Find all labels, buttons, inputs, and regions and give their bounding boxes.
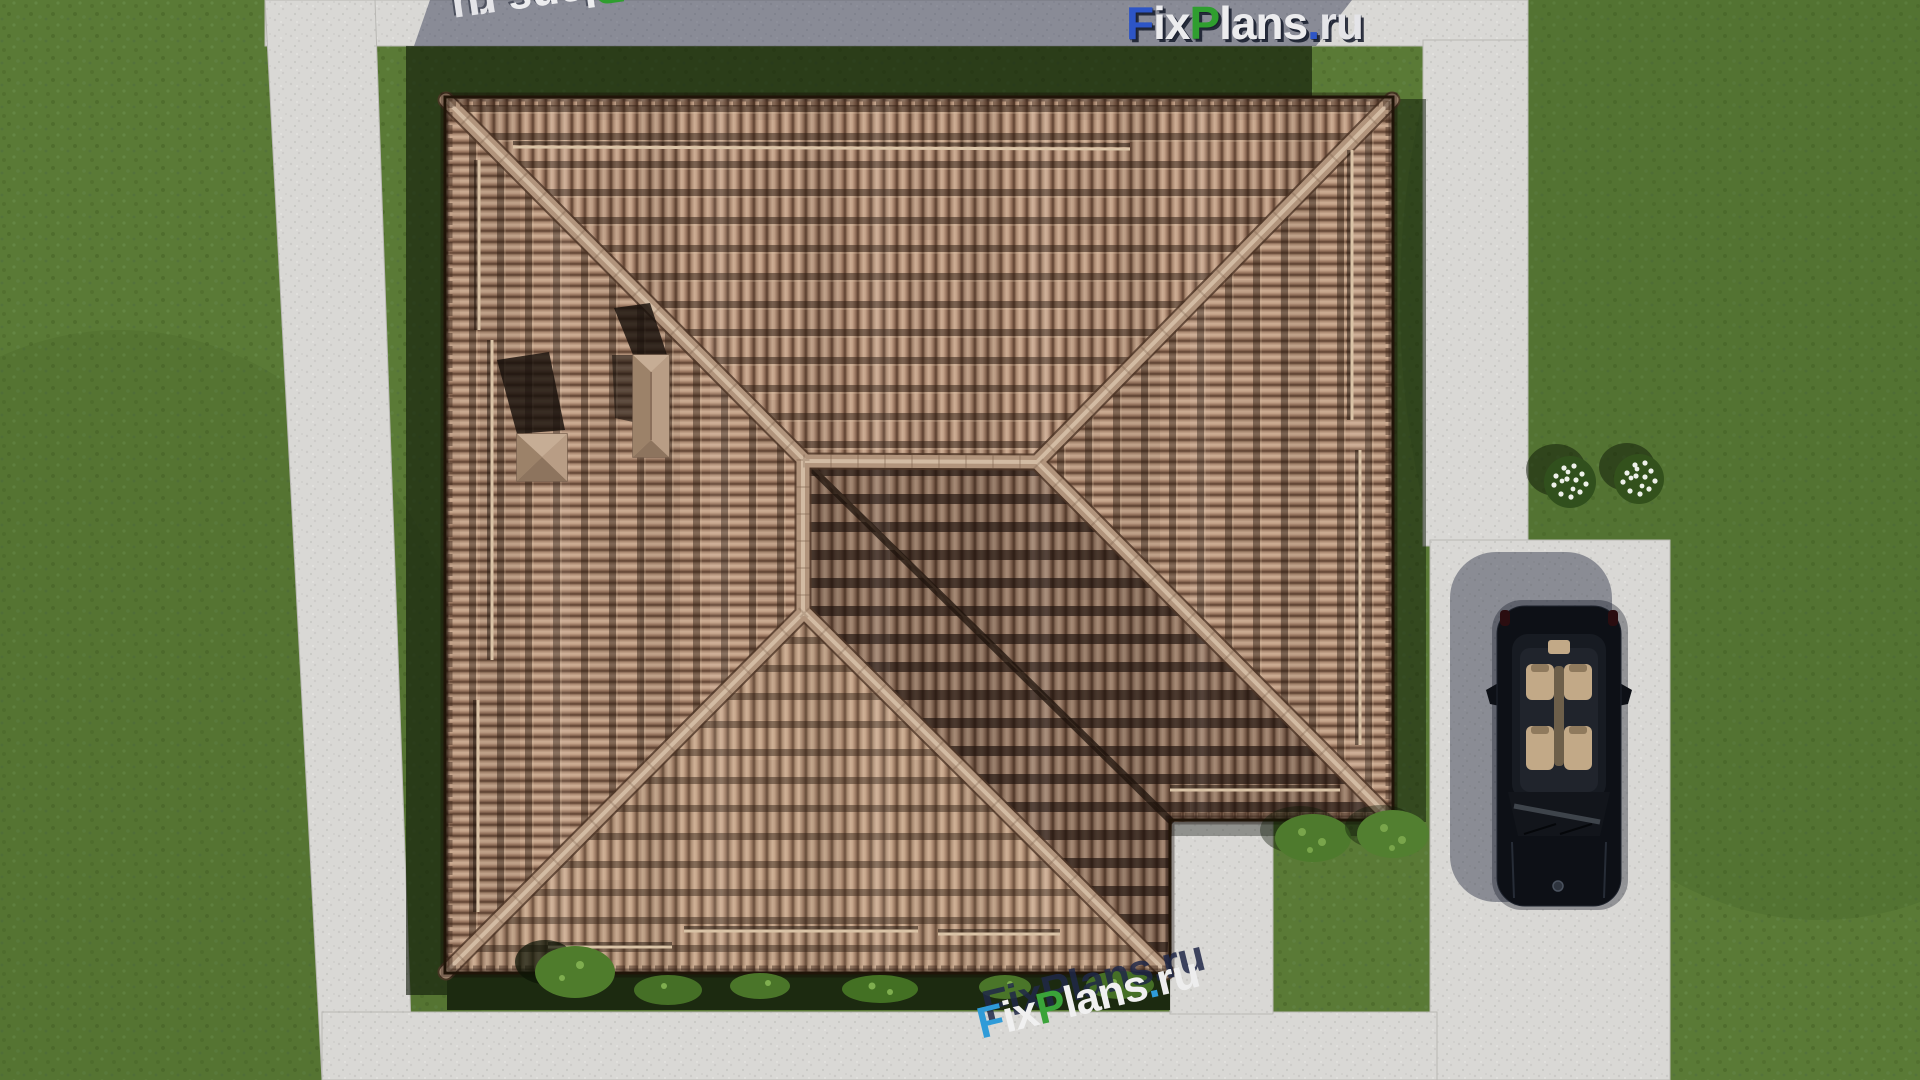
aerial-roof-render (0, 0, 1920, 1080)
walkway-bottom (322, 1012, 1437, 1080)
watermark-segment: . (1307, 0, 1319, 49)
watermark-segment: ru (450, 0, 501, 35)
watermark-segment: ix (1153, 0, 1189, 49)
car-emblem (1553, 881, 1563, 891)
shadow-strip-right (1393, 99, 1426, 822)
render-viewport: FixPlans.ru FixPlans.ru FixPlans.ru (0, 0, 1920, 1080)
watermark-segment: F (1126, 0, 1153, 49)
watermark-top-right: FixPlans.ru (1126, 0, 1363, 50)
chimney-tall (633, 355, 669, 457)
walkway-right (1423, 40, 1528, 546)
watermark-segment: P (1189, 0, 1219, 49)
watermark-segment: ru (1319, 0, 1363, 49)
parked-car (1450, 552, 1632, 910)
car-taillight-right (1608, 610, 1618, 626)
car-console (1554, 666, 1564, 766)
chimney-square (517, 434, 567, 481)
car-taillight-left (1500, 610, 1510, 626)
watermark-segment: lans (1219, 0, 1307, 49)
car-roof-panel (1548, 640, 1570, 654)
chimney-shadow (612, 355, 633, 422)
shadow-strip-top (447, 46, 1312, 99)
